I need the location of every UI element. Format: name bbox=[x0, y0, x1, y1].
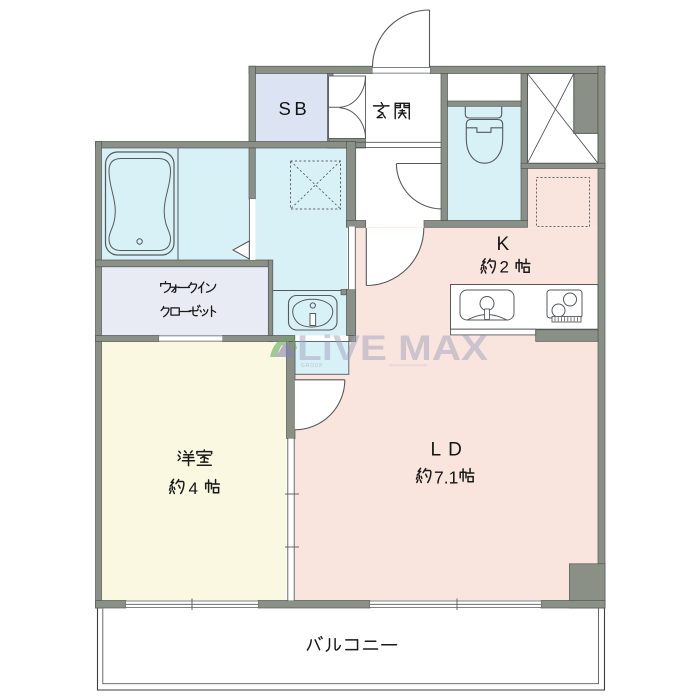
svg-text:K: K bbox=[497, 234, 510, 255]
svg-text:LD: LD bbox=[431, 440, 469, 461]
svg-text:GROUP: GROUP bbox=[301, 363, 323, 369]
svg-text:4: 4 bbox=[189, 479, 198, 498]
svg-text:7.1: 7.1 bbox=[434, 468, 458, 488]
svg-text:LiVE MAX: LiVE MAX bbox=[297, 329, 489, 368]
svg-text:2: 2 bbox=[500, 258, 509, 277]
svg-text:SB: SB bbox=[279, 98, 311, 119]
